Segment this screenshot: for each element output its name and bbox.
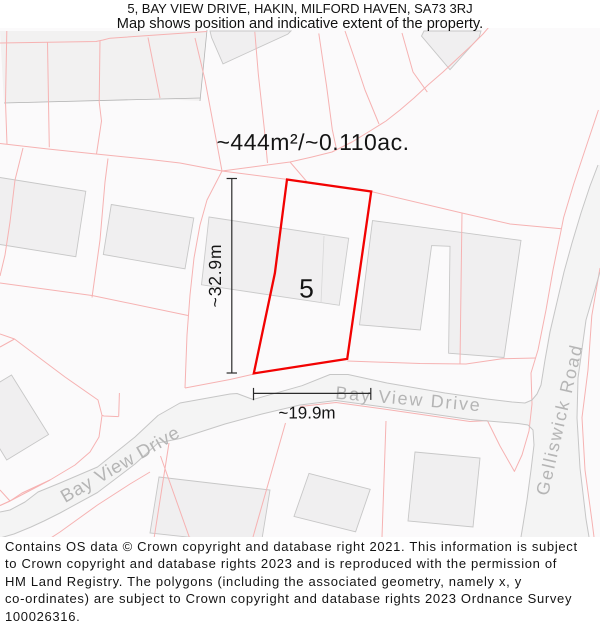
svg-text:~19.9m: ~19.9m xyxy=(278,404,335,423)
svg-text:5: 5 xyxy=(299,274,314,304)
svg-text:~32.9m: ~32.9m xyxy=(205,244,225,308)
svg-text:~444m²/~0.110ac.: ~444m²/~0.110ac. xyxy=(217,129,410,155)
